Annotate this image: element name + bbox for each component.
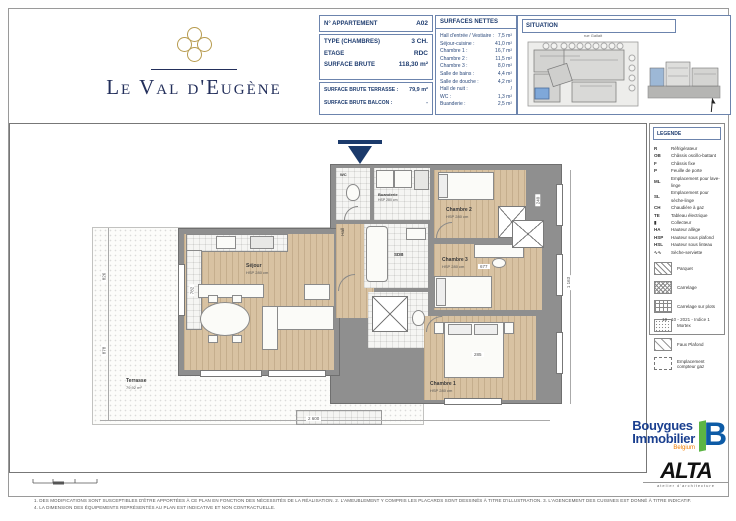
surf-row-value: 2,5 m² <box>498 101 512 109</box>
balcon-brute-value: - <box>426 99 428 108</box>
hall-label: Hall <box>340 228 346 236</box>
toilet <box>412 310 425 326</box>
room-sejour <box>184 234 334 370</box>
surf-row-label: Salle de douche : <box>440 79 479 87</box>
surf-row-value: 41,0 m² <box>495 41 512 49</box>
surface-brute-value: 118,30 m² <box>399 61 428 70</box>
legend-pattern: Emplacement compteur gaz <box>677 359 720 369</box>
window <box>444 398 502 405</box>
legend-item: Feuille de porte <box>671 167 702 174</box>
apartment-number-label: N° APPARTEMENT <box>324 21 377 27</box>
entrance-arrow-icon <box>348 146 372 164</box>
toilet <box>346 184 360 201</box>
sofa-side <box>262 306 278 350</box>
plan-sheet: Le Val d'Eugène N° APPARTEMENT A02 TYPE … <box>0 0 736 521</box>
surf-row-value: 8,0 m² <box>498 63 512 71</box>
legend-item: Emplacement pour lave-linge <box>671 175 720 190</box>
surf-row-label: Buanderie : <box>440 101 466 109</box>
alta-name: ALTA <box>643 461 729 481</box>
dim-label: 782 <box>189 285 194 297</box>
type-label: TYPE (CHAMBRES) <box>324 38 380 47</box>
surf-row-label: Chambre 1 : <box>440 48 468 56</box>
dim-label: 240 <box>535 195 540 207</box>
legend-item: Chaudière à gaz <box>671 204 704 211</box>
buanderie-label: Buanderie HSP 280 cm <box>378 192 398 203</box>
surf-row-value: / <box>511 86 512 94</box>
legend-item: Hauteur allège <box>671 226 700 233</box>
legend-item: Collecteur <box>671 219 691 226</box>
legend-pattern: Faux Plafond <box>677 342 704 347</box>
dim-label: 285 <box>472 352 484 357</box>
carrelage-swatch <box>654 281 672 294</box>
window <box>178 264 185 316</box>
legend-item: Châssis oscillo-battant <box>671 152 716 159</box>
sejour-label: Séjour HSP 280 cm <box>246 264 268 275</box>
surfaces-nettes-box: SURFACES NETTES Hall d'entrée / Vestiair… <box>435 15 517 115</box>
etage-label: ETAGE <box>324 50 344 59</box>
dim-label: 677 <box>478 264 490 269</box>
surf-row-label: Chambre 3 : <box>440 63 468 71</box>
dim-line <box>100 420 550 421</box>
terrasse-label: Terrasse 79,92 m² <box>126 379 146 390</box>
type-value: 3 CH. <box>411 38 428 47</box>
etage-value: RDC <box>414 50 428 59</box>
situation-box: SITUATION rue Gallait <box>517 15 731 115</box>
legend-pattern: Carrelage sur plots <box>677 304 715 309</box>
window <box>556 332 563 374</box>
chambre2-label: Chambre 2 HSP 280 cm <box>446 208 472 219</box>
window <box>556 254 563 296</box>
desk-chair <box>492 258 506 268</box>
surf-row-label: Hall de nuit : <box>440 86 468 94</box>
faux-plafond-swatch <box>654 338 672 351</box>
legend-item: Réfrigérateur <box>671 145 697 152</box>
window <box>556 184 563 226</box>
legend-pattern: Mortex <box>677 323 691 328</box>
coffee-table <box>304 284 330 300</box>
sheet-border: Le Val d'Eugène N° APPARTEMENT A02 TYPE … <box>8 8 729 497</box>
nightstand <box>504 322 514 334</box>
dining-chair <box>208 335 218 343</box>
dim-label: 826 <box>101 271 106 283</box>
terrasse-brute-label: SURFACE BRUTE TERRASSE : <box>324 86 398 95</box>
alta-logo: ALTA atelier d'architecture <box>643 461 729 488</box>
disclaimer-line-1: 1. DES MODIFICATIONS SONT SUSCEPTIBLES D… <box>34 498 724 504</box>
apartment-number-box: N° APPARTEMENT A02 <box>319 15 433 32</box>
dim-label: 1 163 <box>566 275 571 290</box>
dim-line <box>108 228 109 420</box>
chambre3-label: Chambre 3 HSP 280 cm <box>442 258 468 269</box>
dryer <box>394 170 412 188</box>
washbasin <box>406 228 426 240</box>
pillow <box>438 174 448 198</box>
quatrefoil-icon <box>177 27 211 61</box>
surf-row-label: Chambre 2 : <box>440 56 468 64</box>
legend-item: Châssis fixe <box>671 160 695 167</box>
floor-plan: Terrasse 79,92 m² Séjour HSP 280 cm <box>9 123 647 473</box>
dining-chair <box>232 335 242 343</box>
entrance-bar <box>338 140 382 144</box>
legend-item: Hauteur sous linteau <box>671 241 712 248</box>
situation-title: SITUATION <box>526 23 558 29</box>
pillow <box>436 278 446 306</box>
disclaimer-line-2: 4. LA DIMENSION DES ÉQUIPEMENTS REPRÉSEN… <box>34 505 724 511</box>
surf-row-value: 1,3 m² <box>498 94 512 102</box>
wardrobe-icon <box>512 220 544 248</box>
balcon-brute-label: SURFACE BRUTE BALCON : <box>324 99 392 108</box>
wc-label: WC <box>340 172 347 178</box>
legend-pattern: Parquet <box>677 266 693 271</box>
pillow <box>448 324 472 335</box>
dining-chair <box>232 295 242 303</box>
legend-item: Tableau électrique <box>671 212 708 219</box>
alta-tagline: atelier d'architecture <box>643 482 729 488</box>
compteur-gaz-swatch <box>654 357 672 370</box>
project-logo: Le Val d'Eugène <box>69 21 319 117</box>
surf-row-label: Séjour-cuisine : <box>440 41 474 49</box>
bouygues-logo: Bouygues Immobilier Belgium B <box>613 419 729 459</box>
kitchen-sink <box>216 236 236 249</box>
legend-item: Sèche-serviette <box>671 249 702 256</box>
pillow <box>474 324 498 335</box>
shower <box>372 296 408 332</box>
plots-swatch <box>654 300 672 313</box>
dining-table <box>200 302 250 336</box>
plan-date: 19 - 10 - 2021 - Indice 1 <box>649 317 723 322</box>
surf-row-value: 7,5 m² <box>498 33 512 41</box>
parquet-swatch <box>654 262 672 275</box>
chambre1-label: Chambre 1 HSP 280 cm <box>430 382 456 393</box>
scale-bar <box>31 475 101 489</box>
terrasse-brute-value: 79,9 m² <box>409 86 428 95</box>
terrace-surface-box: SURFACE BRUTE TERRASSE : 79,9 m² SURFACE… <box>319 82 433 115</box>
sdb-label: SDB <box>394 252 404 258</box>
dining-chair <box>208 295 218 303</box>
bouygues-mark-icon: B <box>699 419 729 455</box>
surf-row-value: 4,4 m² <box>498 71 512 79</box>
surf-row-value: 11,5 m² <box>495 56 512 64</box>
legend-pattern: Carrelage <box>677 285 697 290</box>
surfaces-nettes-title: SURFACES NETTES <box>440 19 498 25</box>
legend-box: LEGENDE RRéfrigérateur OBChâssis oscillo… <box>649 123 725 335</box>
north-arrow-icon <box>705 98 719 112</box>
legend-item: Hauteur sous plafond <box>671 234 714 241</box>
boiler <box>414 170 429 190</box>
surf-row-value: 16,7 m² <box>495 48 512 56</box>
surf-row-value: 4,2 m² <box>498 79 512 87</box>
washing-machine <box>376 170 394 188</box>
project-title: Le Val d'Eugène <box>69 75 319 100</box>
dim-label: 2 600 <box>306 416 321 421</box>
window <box>268 370 326 377</box>
situation-map <box>520 36 726 112</box>
kitchen-hob <box>250 236 274 249</box>
dim-label: 878 <box>101 345 106 357</box>
bathtub <box>366 226 388 282</box>
window <box>200 370 262 377</box>
logo-divider <box>151 69 237 70</box>
surf-row-label: WC : <box>440 94 451 102</box>
surf-row-label: Salle de bains : <box>440 71 474 79</box>
bouygues-name-2: Immobilier <box>632 432 695 445</box>
apartment-number-value: A02 <box>416 20 428 27</box>
surface-brute-label: SURFACE BRUTE <box>324 61 375 70</box>
legend-title: LEGENDE <box>657 131 681 137</box>
legend-item: Emplacement pour sèche-linge <box>671 189 720 204</box>
apartment-details-box: TYPE (CHAMBRES) 3 CH. ETAGE RDC SURFACE … <box>319 34 433 80</box>
surf-row-label: Hall d'entrée / Vestiaire : <box>440 33 494 41</box>
